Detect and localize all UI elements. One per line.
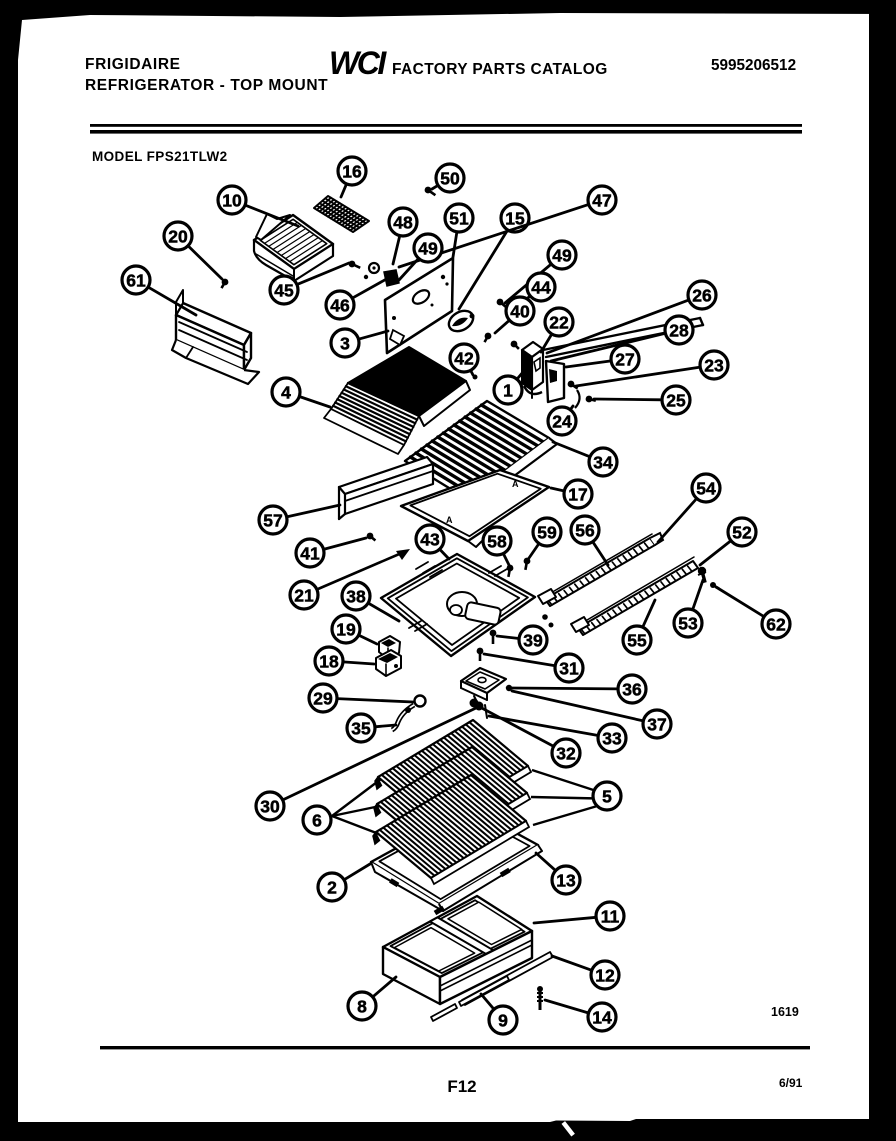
svg-text:38: 38 xyxy=(346,587,366,607)
svg-text:33: 33 xyxy=(602,729,622,749)
svg-text:18: 18 xyxy=(319,652,339,672)
svg-text:30: 30 xyxy=(260,797,280,817)
svg-text:48: 48 xyxy=(393,213,413,233)
svg-text:23: 23 xyxy=(704,356,724,376)
svg-text:2: 2 xyxy=(327,878,337,898)
svg-text:12: 12 xyxy=(595,966,615,986)
svg-text:F12: F12 xyxy=(447,1077,476,1096)
svg-text:59: 59 xyxy=(537,523,557,543)
svg-text:35: 35 xyxy=(351,719,371,739)
svg-text:5995206512: 5995206512 xyxy=(711,57,796,74)
svg-text:24: 24 xyxy=(552,412,572,432)
svg-text:27: 27 xyxy=(615,350,634,370)
svg-text:41: 41 xyxy=(300,544,320,564)
svg-text:40: 40 xyxy=(510,302,530,322)
svg-text:11: 11 xyxy=(601,907,620,927)
svg-text:10: 10 xyxy=(222,191,242,211)
svg-text:56: 56 xyxy=(575,521,595,541)
svg-text:54: 54 xyxy=(696,479,716,499)
svg-text:17: 17 xyxy=(568,485,587,505)
svg-text:31: 31 xyxy=(559,659,579,679)
svg-text:5: 5 xyxy=(602,787,612,807)
svg-text:14: 14 xyxy=(592,1008,612,1028)
svg-text:55: 55 xyxy=(627,631,647,651)
svg-text:8: 8 xyxy=(357,997,367,1017)
svg-text:37: 37 xyxy=(647,715,666,735)
svg-text:46: 46 xyxy=(330,296,350,316)
svg-text:9: 9 xyxy=(498,1011,508,1031)
svg-text:53: 53 xyxy=(678,614,698,634)
svg-text:29: 29 xyxy=(313,689,333,709)
svg-text:13: 13 xyxy=(556,871,576,891)
svg-text:62: 62 xyxy=(766,615,786,635)
svg-text:6/91: 6/91 xyxy=(779,1076,803,1090)
svg-text:21: 21 xyxy=(294,586,314,606)
svg-text:49: 49 xyxy=(418,239,438,259)
svg-text:49: 49 xyxy=(552,246,572,266)
svg-text:6: 6 xyxy=(312,811,322,831)
svg-text:43: 43 xyxy=(420,530,440,550)
svg-text:34: 34 xyxy=(593,453,613,473)
svg-text:26: 26 xyxy=(692,286,712,306)
svg-text:61: 61 xyxy=(126,271,146,291)
svg-text:A: A xyxy=(446,515,453,525)
svg-text:57: 57 xyxy=(263,511,282,531)
svg-text:A: A xyxy=(512,479,519,489)
svg-text:51: 51 xyxy=(449,209,469,229)
svg-text:WCI: WCI xyxy=(329,45,387,81)
svg-text:16: 16 xyxy=(342,162,362,182)
svg-text:19: 19 xyxy=(336,620,356,640)
svg-text:42: 42 xyxy=(454,349,474,369)
svg-text:20: 20 xyxy=(168,227,188,247)
svg-text:58: 58 xyxy=(487,532,507,552)
svg-text:1619: 1619 xyxy=(771,1005,799,1019)
svg-text:45: 45 xyxy=(274,281,294,301)
svg-text:MODEL FPS21TLW2: MODEL FPS21TLW2 xyxy=(92,149,228,164)
svg-text:39: 39 xyxy=(523,631,543,651)
svg-text:52: 52 xyxy=(732,523,752,543)
svg-text:FRIGIDAIRE: FRIGIDAIRE xyxy=(85,56,181,73)
svg-text:25: 25 xyxy=(666,391,686,411)
svg-text:1: 1 xyxy=(503,381,513,401)
svg-text:36: 36 xyxy=(622,680,642,700)
svg-text:50: 50 xyxy=(440,169,460,189)
svg-text:22: 22 xyxy=(549,313,569,333)
svg-text:28: 28 xyxy=(669,321,689,341)
svg-text:44: 44 xyxy=(531,278,551,298)
svg-text:32: 32 xyxy=(556,744,576,764)
svg-text:REFRIGERATOR - TOP MOUNT: REFRIGERATOR - TOP MOUNT xyxy=(85,77,328,94)
svg-text:3: 3 xyxy=(340,334,350,354)
svg-text:FACTORY PARTS CATALOG: FACTORY PARTS CATALOG xyxy=(392,61,608,78)
svg-text:47: 47 xyxy=(592,191,611,211)
svg-text:4: 4 xyxy=(281,383,291,403)
